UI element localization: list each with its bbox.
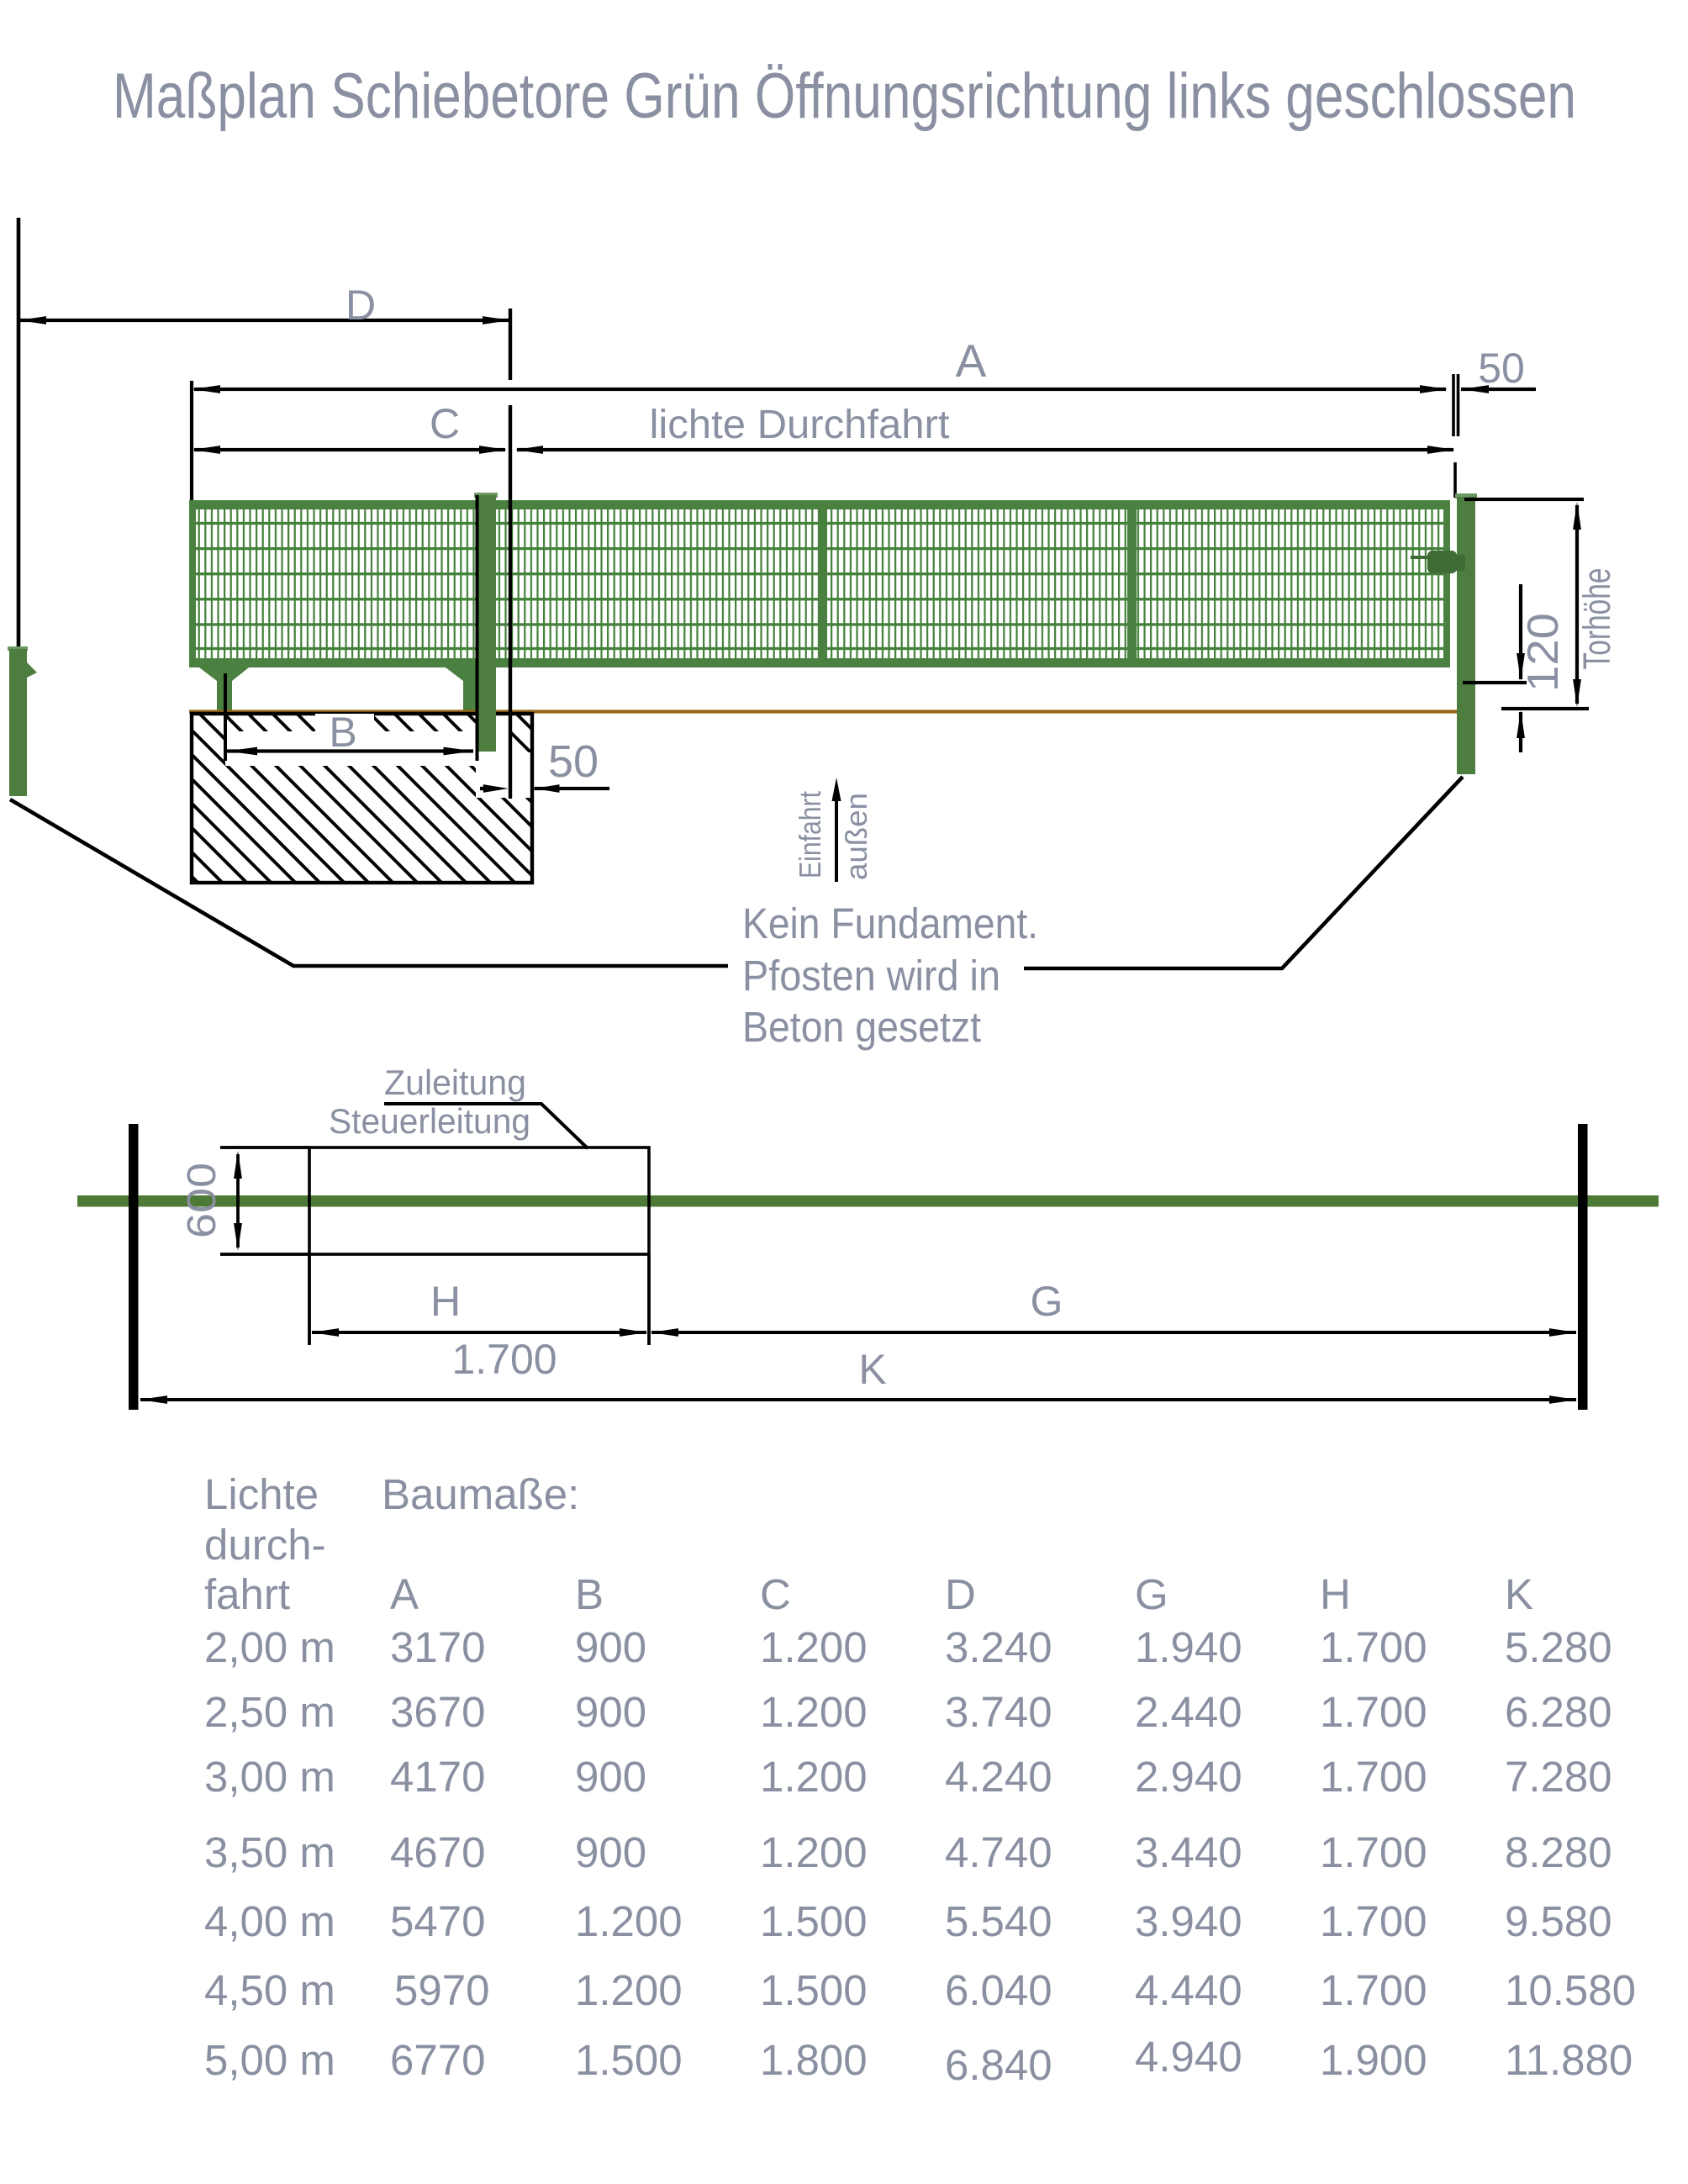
svg-text:2,50 m: 2,50 m	[204, 1688, 335, 1736]
svg-text:1.200: 1.200	[760, 1623, 868, 1671]
svg-text:4.240: 4.240	[945, 1753, 1052, 1801]
svg-text:2.940: 2.940	[1135, 1753, 1242, 1801]
svg-text:6770: 6770	[390, 2036, 485, 2084]
svg-text:3.940: 3.940	[1135, 1897, 1242, 1945]
svg-text:fahrt: fahrt	[204, 1570, 290, 1618]
svg-text:Steuerleitung: Steuerleitung	[329, 1101, 530, 1141]
svg-text:B: B	[329, 709, 356, 756]
svg-text:A: A	[390, 1570, 419, 1618]
svg-text:G: G	[1031, 1278, 1063, 1325]
svg-text:D: D	[945, 1570, 976, 1618]
svg-text:5470: 5470	[390, 1897, 485, 1945]
svg-text:1.700: 1.700	[1320, 1966, 1427, 2014]
svg-text:50: 50	[548, 736, 599, 787]
svg-text:900: 900	[575, 1828, 646, 1876]
svg-text:2.440: 2.440	[1135, 1688, 1242, 1736]
svg-text:Einfahrt: Einfahrt	[793, 791, 827, 878]
svg-text:4,50 m: 4,50 m	[204, 1966, 335, 2014]
svg-text:3.740: 3.740	[945, 1688, 1052, 1736]
svg-text:K: K	[1505, 1570, 1533, 1618]
svg-text:3,00 m: 3,00 m	[204, 1753, 335, 1801]
svg-text:600: 600	[180, 1163, 224, 1238]
svg-text:4170: 4170	[390, 1753, 485, 1801]
svg-text:1.700: 1.700	[451, 1336, 557, 1383]
svg-text:Baumaße:: Baumaße:	[382, 1470, 579, 1518]
svg-text:lichte Durchfahrt: lichte Durchfahrt	[650, 403, 950, 447]
svg-text:5,00 m: 5,00 m	[204, 2036, 335, 2084]
svg-text:5970: 5970	[394, 1966, 489, 2014]
svg-text:C: C	[430, 400, 460, 447]
svg-text:6.280: 6.280	[1505, 1688, 1612, 1736]
svg-text:1.700: 1.700	[1320, 1753, 1427, 1801]
svg-text:4.740: 4.740	[945, 1828, 1052, 1876]
svg-text:3670: 3670	[390, 1688, 485, 1736]
svg-text:6.040: 6.040	[945, 1966, 1052, 2014]
svg-text:1.200: 1.200	[575, 1966, 683, 2014]
svg-text:11.880: 11.880	[1505, 2036, 1633, 2084]
svg-text:G: G	[1135, 1570, 1168, 1618]
svg-text:Kein Fundament.: Kein Fundament.	[742, 899, 1038, 947]
svg-text:D: D	[346, 282, 376, 329]
svg-text:1.700: 1.700	[1320, 1623, 1427, 1671]
svg-text:4,00 m: 4,00 m	[204, 1897, 335, 1945]
svg-text:1.200: 1.200	[760, 1688, 868, 1736]
svg-text:120: 120	[1519, 613, 1568, 692]
svg-text:B: B	[575, 1570, 604, 1618]
svg-text:50: 50	[1478, 345, 1525, 392]
svg-text:C: C	[760, 1570, 791, 1618]
svg-text:H: H	[430, 1278, 461, 1325]
svg-text:4670: 4670	[390, 1828, 485, 1876]
svg-text:H: H	[1320, 1570, 1351, 1618]
svg-text:1.500: 1.500	[760, 1897, 868, 1945]
svg-text:1.200: 1.200	[760, 1828, 868, 1876]
svg-text:4.940: 4.940	[1135, 2033, 1242, 2081]
svg-text:3.440: 3.440	[1135, 1828, 1242, 1876]
svg-text:2,00 m: 2,00 m	[204, 1623, 335, 1671]
svg-text:1.700: 1.700	[1320, 1828, 1427, 1876]
svg-text:1.700: 1.700	[1320, 1688, 1427, 1736]
svg-text:8.280: 8.280	[1505, 1828, 1612, 1876]
svg-text:1.500: 1.500	[575, 2036, 683, 2084]
svg-text:Maßplan Schiebetore Grün Öffnu: Maßplan Schiebetore Grün Öffnungsrichtun…	[113, 61, 1576, 132]
svg-text:5.280: 5.280	[1505, 1623, 1612, 1671]
svg-text:3.240: 3.240	[945, 1623, 1052, 1671]
svg-text:Torhöhe: Torhöhe	[1575, 568, 1618, 670]
svg-text:5.540: 5.540	[945, 1897, 1052, 1945]
svg-text:Pfosten wird in: Pfosten wird in	[742, 952, 1000, 1000]
svg-text:1.200: 1.200	[575, 1897, 683, 1945]
svg-text:A: A	[956, 335, 987, 387]
svg-text:durch-: durch-	[204, 1521, 326, 1569]
svg-text:7.280: 7.280	[1505, 1753, 1612, 1801]
svg-text:10.580: 10.580	[1505, 1966, 1636, 2014]
svg-text:Lichte: Lichte	[204, 1470, 319, 1518]
svg-text:Zuleitung: Zuleitung	[384, 1063, 526, 1102]
svg-text:900: 900	[575, 1688, 646, 1736]
svg-text:K: K	[858, 1346, 886, 1393]
svg-text:900: 900	[575, 1753, 646, 1801]
svg-text:4.440: 4.440	[1135, 1966, 1242, 2014]
svg-text:1.940: 1.940	[1135, 1623, 1242, 1671]
svg-text:9.580: 9.580	[1505, 1897, 1612, 1945]
svg-text:6.840: 6.840	[945, 2041, 1052, 2089]
svg-text:3,50 m: 3,50 m	[204, 1828, 335, 1876]
svg-text:Beton gesetzt: Beton gesetzt	[742, 1003, 981, 1051]
svg-text:1.800: 1.800	[760, 2036, 868, 2084]
svg-text:außen: außen	[839, 793, 873, 880]
svg-text:1.700: 1.700	[1320, 1897, 1427, 1945]
svg-text:3170: 3170	[390, 1623, 485, 1671]
svg-text:1.200: 1.200	[760, 1753, 868, 1801]
svg-text:900: 900	[575, 1623, 646, 1671]
svg-text:1.500: 1.500	[760, 1966, 868, 2014]
svg-text:1.900: 1.900	[1320, 2036, 1427, 2084]
